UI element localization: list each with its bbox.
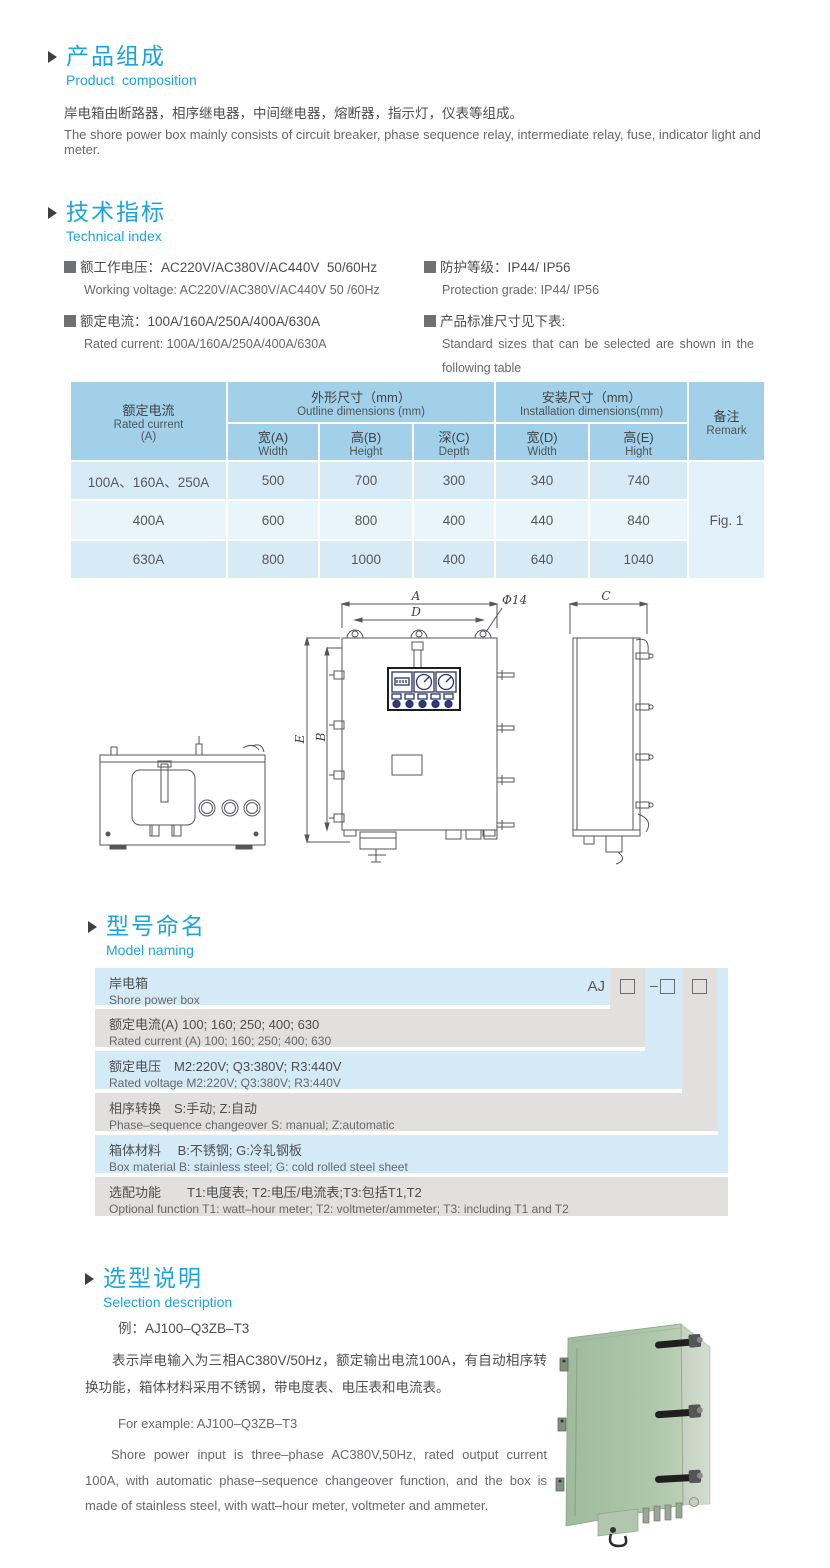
model-code-prefix: AJ [573, 978, 605, 995]
section-title-zh: 选型说明 [103, 1266, 232, 1291]
selection-example-zh: 例：AJ100–Q3ZB–T3 [118, 1316, 547, 1342]
group-header-outline: 外形尺寸（mm） Outline dimensions (mm) [228, 382, 494, 422]
cell-install-width: 640 [496, 541, 588, 578]
cell-remark: Fig. 1 [689, 462, 764, 578]
cell-install-hight: 1040 [590, 541, 687, 578]
spec-rated-current: 额定电流：100A/160A/250A/400A/630A [64, 310, 320, 330]
section-selection-header: 选型说明 Selection description [85, 1266, 232, 1310]
section-title-en: Product composition [66, 72, 197, 88]
dimensions-table: 额定电流 Rated current (A) 外形尺寸（mm） Outline … [69, 380, 766, 580]
model-code-box-3 [692, 979, 707, 994]
naming-row-phase-sequence: 相序转换 S:手动; Z:自动Phase–sequence changeover… [95, 1093, 718, 1131]
model-naming-diagram: 岸电箱Shore power box 额定电流(A) 100; 160; 250… [95, 968, 728, 1216]
section-arrow-icon [88, 921, 97, 933]
section-arrow-icon [85, 1273, 94, 1285]
catalog-page: { "colors": { "accent_blue": "#1ba4de", … [0, 0, 830, 1568]
selection-desc-en: Shore power input is three–phase AC380V,… [85, 1442, 547, 1518]
cell-width: 600 [228, 501, 318, 539]
naming-row-rated-current: 额定电流(A) 100; 160; 250; 400; 630Rated cur… [95, 1009, 645, 1047]
technical-drawing: A D Φ14 E B C [50, 578, 780, 893]
table-row: 400A 600 800 400 440 840 [71, 501, 764, 539]
naming-row-shore-power-box: 岸电箱Shore power box [95, 968, 610, 1005]
cell-current: 400A [71, 501, 226, 539]
section-title-zh: 产品组成 [66, 44, 197, 69]
section-composition-header: 产品组成 Product composition [48, 44, 197, 88]
composition-body-zh: 岸电箱由断路器，相序继电器，中间继电器，熔断器，指示灯，仪表等组成。 [64, 102, 784, 122]
subcol-width-d: 宽(D)Width [496, 424, 588, 460]
model-code-box-1 [620, 979, 635, 994]
composition-body-en: The shore power box mainly consists of c… [64, 127, 784, 157]
subcol-width-a: 宽(A)Width [228, 424, 318, 460]
section-title-en: Model naming [106, 942, 206, 958]
section-technical-header: 技术指标 Technical index [48, 200, 166, 244]
bullet-square-icon [64, 261, 76, 273]
cell-depth: 300 [414, 462, 494, 499]
spec-protection-grade: 防护等级：IP44/ IP56 [424, 256, 571, 276]
section-title-en: Technical index [66, 228, 166, 244]
selection-desc-zh: 表示岸电输入为三相AC380V/50Hz，额定输出电流100A，有自动相序转换功… [85, 1348, 547, 1401]
cell-height: 1000 [320, 541, 412, 578]
section-title-zh: 技术指标 [66, 200, 166, 225]
cell-install-width: 340 [496, 462, 588, 499]
table-row: 100A、160A、250A 500 700 300 340 740 Fig. … [71, 462, 764, 499]
spec-rated-current-en: Rated current: 100A/160A/250A/400A/630A [84, 337, 327, 351]
subcol-height-b: 高(B)Height [320, 424, 412, 460]
naming-row-box-material: 箱体材料 B:不锈钢; G:冷轧钢板Box material B: stainl… [95, 1135, 728, 1173]
cell-width: 800 [228, 541, 318, 578]
dim-label-d: D [410, 605, 421, 619]
cell-height: 800 [320, 501, 412, 539]
cell-install-hight: 840 [590, 501, 687, 539]
section-title-en: Selection description [103, 1294, 232, 1310]
section-arrow-icon [48, 207, 57, 219]
bullet-square-icon [64, 315, 76, 327]
cell-width: 500 [228, 462, 318, 499]
cell-current: 630A [71, 541, 226, 578]
dim-label-phi14: Φ14 [502, 593, 527, 607]
product-photo [543, 1298, 798, 1566]
spec-standard-sizes-en: Standard sizes that can be selected are … [442, 332, 754, 381]
selection-example-en: For example: AJ100–Q3ZB–T3 [118, 1411, 547, 1436]
section-arrow-icon [48, 51, 57, 63]
cell-depth: 400 [414, 501, 494, 539]
spec-working-voltage: 额工作电压：AC220V/AC380V/AC440V 50/60Hz [64, 256, 377, 276]
subcol-hight-e: 高(E)Hight [590, 424, 687, 460]
dim-label-b: B [314, 732, 328, 742]
col-header-remark: 备注 Remark [689, 382, 764, 460]
dim-label-c: C [601, 589, 610, 603]
cell-install-hight: 740 [590, 462, 687, 499]
subcol-depth-c: 深(C)Depth [414, 424, 494, 460]
dim-label-e: E [293, 734, 307, 744]
col-header-rated-current: 额定电流 Rated current (A) [71, 382, 226, 460]
spec-protection-grade-en: Protection grade: IP44/ IP56 [442, 283, 599, 297]
bullet-square-icon [424, 315, 436, 327]
cell-install-width: 440 [496, 501, 588, 539]
table-row: 630A 800 1000 400 640 1040 [71, 541, 764, 578]
model-code-box-2 [660, 979, 675, 994]
cell-depth: 400 [414, 541, 494, 578]
selection-text: 例：AJ100–Q3ZB–T3 表示岸电输入为三相AC380V/50Hz，额定输… [85, 1316, 547, 1524]
model-code-dash: – [650, 977, 658, 993]
spec-standard-sizes: 产品标准尺寸见下表: [424, 310, 565, 330]
section-title-zh: 型号命名 [106, 914, 206, 939]
spec-working-voltage-en: Working voltage: AC220V/AC380V/AC440V 50… [84, 283, 380, 297]
group-header-installation: 安装尺寸（mm） Installation dimensions(mm) [496, 382, 687, 422]
dim-label-a: A [411, 589, 421, 603]
cell-current: 100A、160A、250A [71, 462, 226, 499]
bullet-square-icon [424, 261, 436, 273]
naming-row-rated-voltage: 额定电压 M2:220V; Q3:380V; R3:440VRated volt… [95, 1051, 682, 1089]
cell-height: 700 [320, 462, 412, 499]
naming-row-optional-function: 选配功能 T1:电度表; T2:电压/电流表;T3:包括T1,T2Optiona… [95, 1177, 728, 1216]
section-naming-header: 型号命名 Model naming [88, 914, 206, 958]
